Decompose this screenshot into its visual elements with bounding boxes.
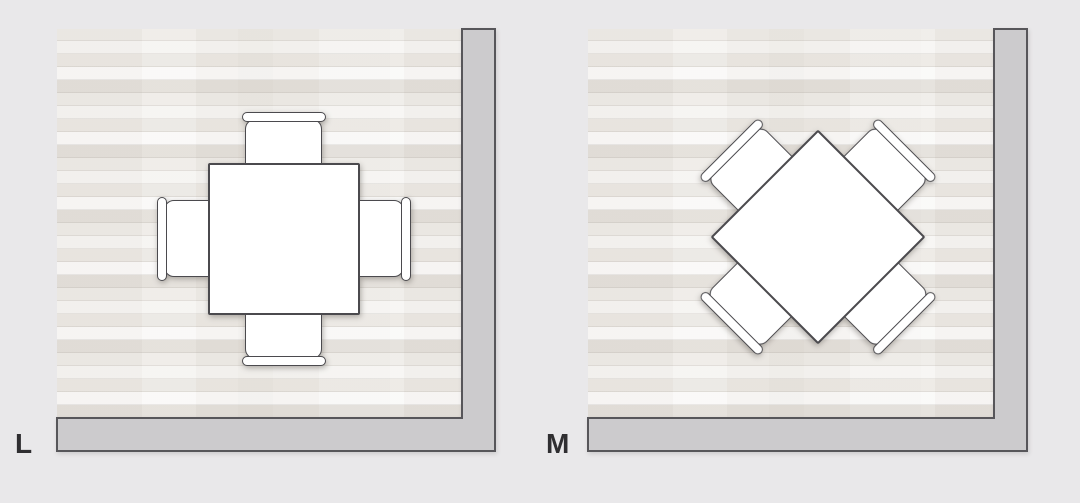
panel-l	[57, 29, 462, 418]
chair-backrest	[401, 197, 411, 281]
chair-backrest	[157, 197, 167, 281]
panel-m	[588, 29, 994, 418]
dining-set-straight	[124, 79, 444, 399]
label-l: L	[15, 430, 32, 458]
chair-backrest	[242, 356, 326, 366]
label-m: M	[546, 430, 569, 458]
placement-diagram-canvas: L M	[0, 0, 1080, 503]
chair-backrest	[242, 112, 326, 122]
table	[208, 163, 360, 315]
